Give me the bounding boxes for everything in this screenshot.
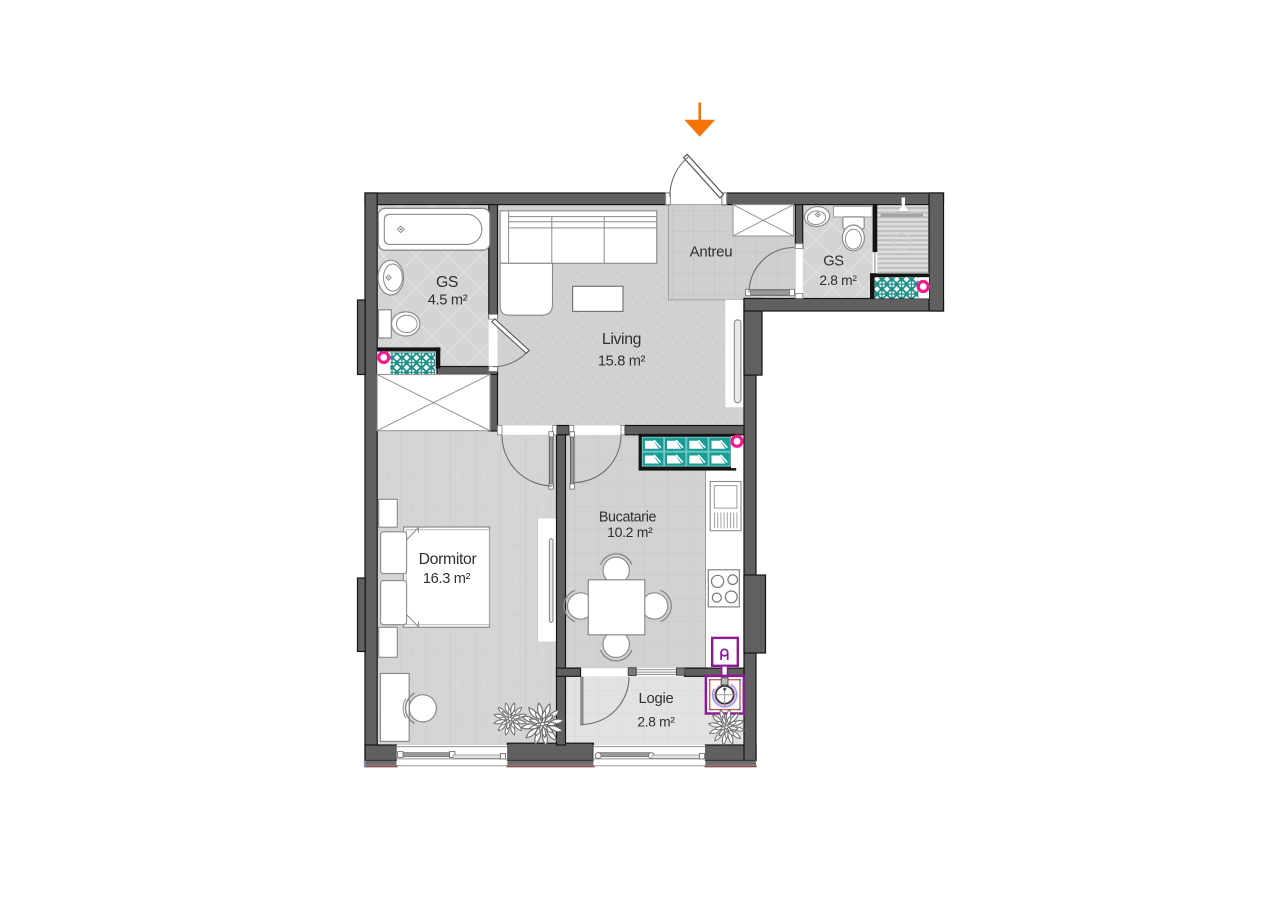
svg-text:GS: GS [436,274,458,291]
svg-text:GS: GS [823,254,844,270]
svg-text:4.5 m²: 4.5 m² [428,292,468,308]
svg-text:Logie: Logie [639,691,674,707]
svg-text:Dormitor: Dormitor [419,551,477,568]
svg-text:Antreu: Antreu [690,243,733,260]
svg-text:16.3 m²: 16.3 m² [423,571,471,587]
svg-text:15.8 m²: 15.8 m² [598,353,646,369]
svg-text:Living: Living [602,331,641,348]
svg-text:2.8 m²: 2.8 m² [637,715,675,730]
svg-text:Bucatarie: Bucatarie [599,509,657,525]
svg-text:2.8 m²: 2.8 m² [819,273,857,288]
svg-text:10.2 m²: 10.2 m² [607,524,653,540]
